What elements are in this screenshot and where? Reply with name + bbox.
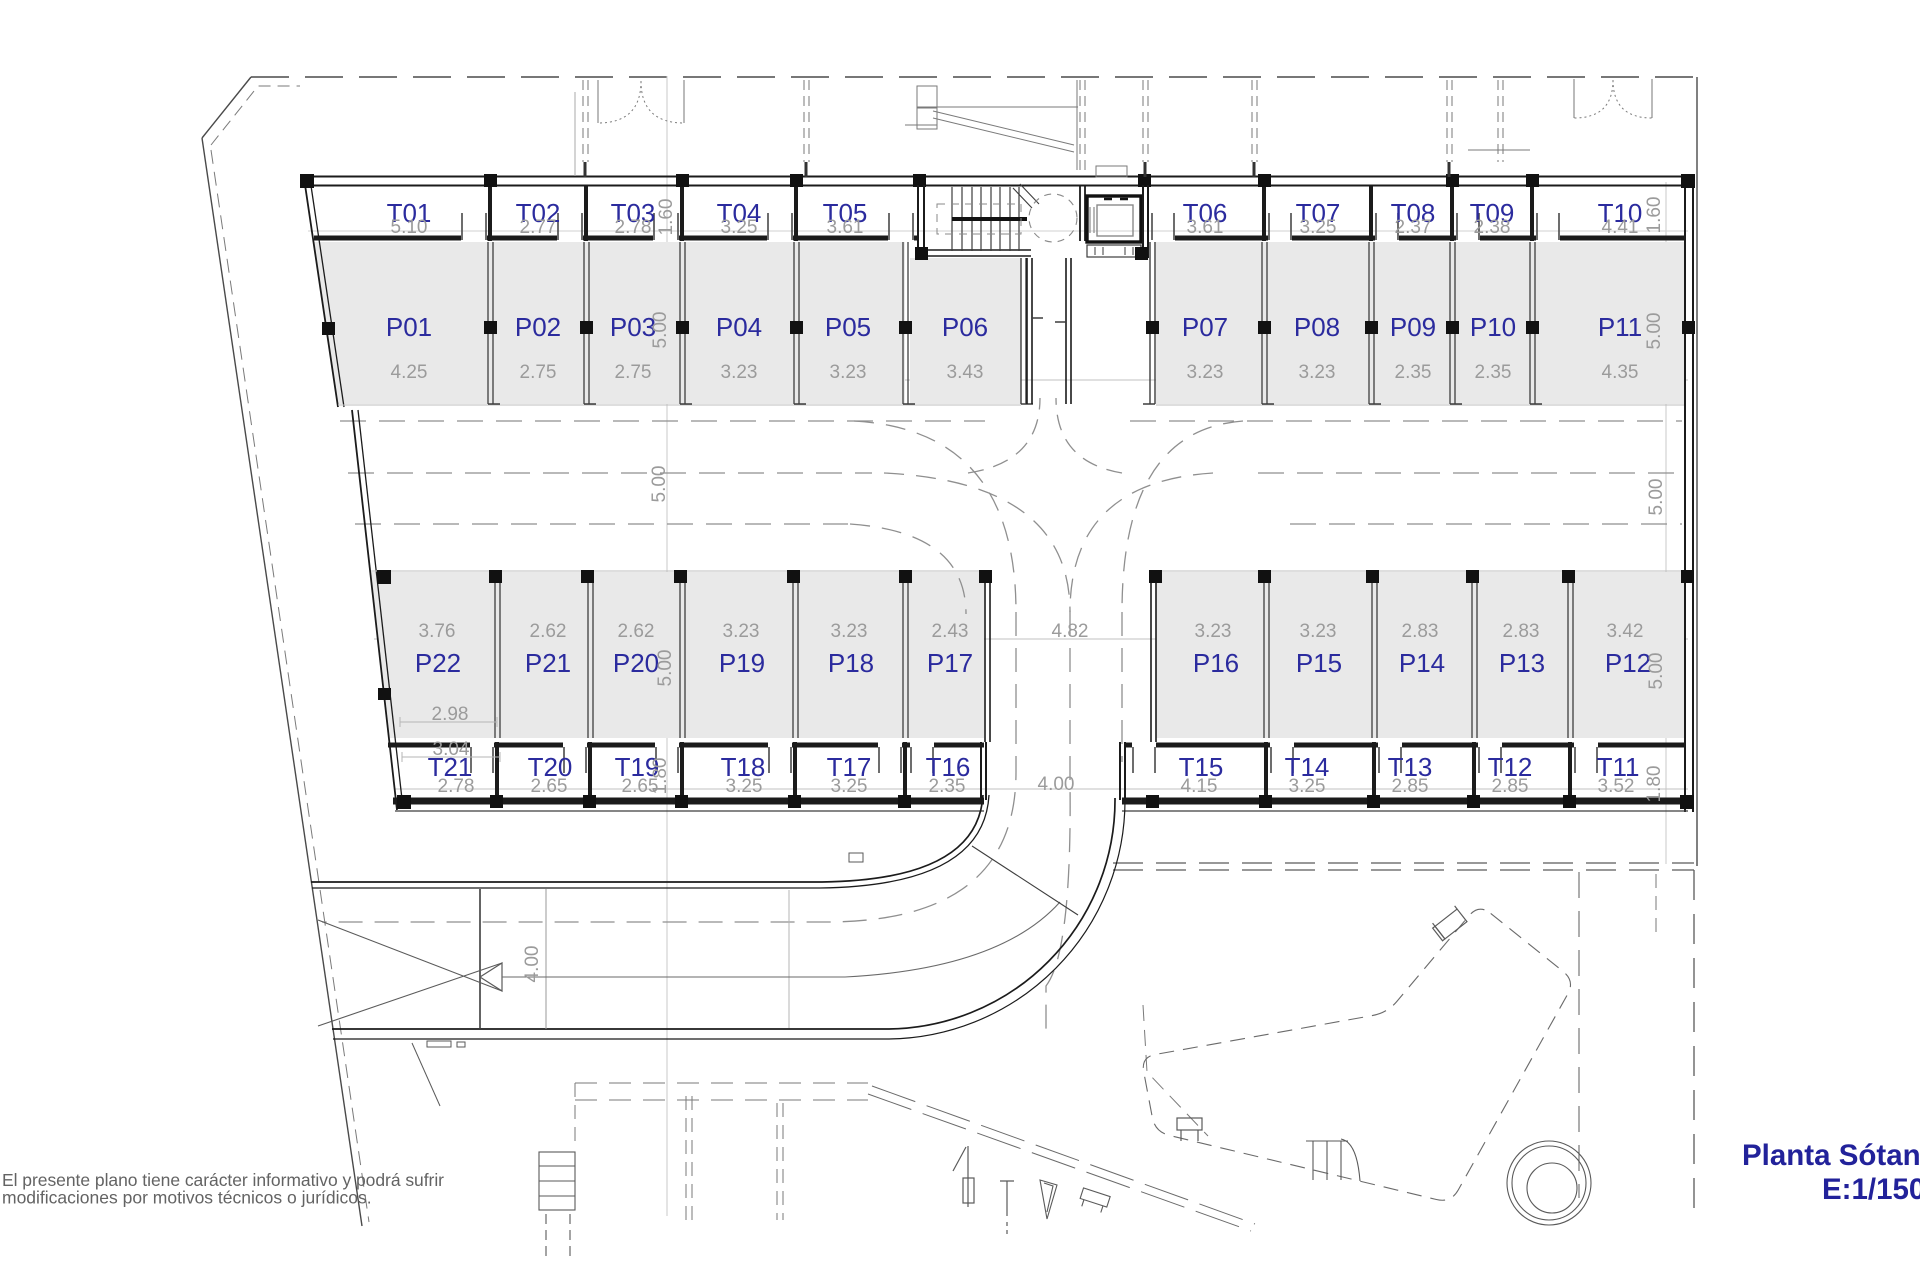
svg-text:3.23: 3.23 bbox=[1187, 362, 1224, 383]
svg-text:3.61: 3.61 bbox=[827, 217, 864, 238]
svg-text:2.83: 2.83 bbox=[1503, 621, 1540, 642]
svg-text:3.43: 3.43 bbox=[947, 362, 984, 383]
svg-text:2.43: 2.43 bbox=[932, 621, 969, 642]
svg-text:P20: P20 bbox=[613, 648, 659, 678]
svg-text:5.00: 5.00 bbox=[649, 466, 670, 503]
svg-text:4.00: 4.00 bbox=[522, 946, 543, 983]
svg-text:3.23: 3.23 bbox=[1299, 362, 1336, 383]
svg-text:4.00: 4.00 bbox=[1038, 774, 1075, 795]
svg-text:3.25: 3.25 bbox=[726, 776, 763, 797]
svg-text:P08: P08 bbox=[1294, 312, 1340, 342]
svg-text:2.78: 2.78 bbox=[615, 217, 652, 238]
svg-text:2.37: 2.37 bbox=[1395, 217, 1432, 238]
svg-text:P09: P09 bbox=[1390, 312, 1436, 342]
svg-text:1.60: 1.60 bbox=[1644, 197, 1665, 234]
svg-text:3.23: 3.23 bbox=[723, 621, 760, 642]
svg-text:P05: P05 bbox=[825, 312, 871, 342]
svg-text:2.35: 2.35 bbox=[1395, 362, 1432, 383]
svg-text:3.23: 3.23 bbox=[721, 362, 758, 383]
svg-text:4.35: 4.35 bbox=[1602, 362, 1639, 383]
svg-text:4.15: 4.15 bbox=[1181, 776, 1218, 797]
svg-text:4.41: 4.41 bbox=[1602, 217, 1639, 238]
svg-text:2.62: 2.62 bbox=[618, 621, 655, 642]
svg-text:3.76: 3.76 bbox=[419, 621, 456, 642]
svg-text:P16: P16 bbox=[1193, 648, 1239, 678]
svg-text:2.38: 2.38 bbox=[1474, 217, 1511, 238]
svg-text:5.00: 5.00 bbox=[650, 312, 671, 349]
svg-text:3.61: 3.61 bbox=[1187, 217, 1224, 238]
svg-text:P12: P12 bbox=[1605, 648, 1651, 678]
svg-text:2.77: 2.77 bbox=[520, 217, 557, 238]
svg-text:Planta Sótano: Planta Sótano bbox=[1742, 1139, 1920, 1172]
svg-text:4.25: 4.25 bbox=[391, 362, 428, 383]
svg-text:2.75: 2.75 bbox=[520, 362, 557, 383]
svg-text:3.25: 3.25 bbox=[1300, 217, 1337, 238]
svg-text:P07: P07 bbox=[1182, 312, 1228, 342]
svg-text:P22: P22 bbox=[415, 648, 461, 678]
svg-text:2.62: 2.62 bbox=[530, 621, 567, 642]
svg-text:5.00: 5.00 bbox=[1646, 653, 1667, 690]
svg-text:3.25: 3.25 bbox=[1289, 776, 1326, 797]
svg-text:P17: P17 bbox=[927, 648, 973, 678]
svg-text:3.23: 3.23 bbox=[1195, 621, 1232, 642]
svg-text:modificaciones por motivos téc: modificaciones por motivos técnicos o ju… bbox=[2, 1188, 372, 1208]
svg-text:3.23: 3.23 bbox=[830, 362, 867, 383]
svg-text:P06: P06 bbox=[942, 312, 988, 342]
svg-text:P01: P01 bbox=[386, 312, 432, 342]
svg-text:2.85: 2.85 bbox=[1392, 776, 1429, 797]
svg-text:5.00: 5.00 bbox=[655, 650, 676, 687]
svg-text:P10: P10 bbox=[1470, 312, 1516, 342]
svg-text:P02: P02 bbox=[515, 312, 561, 342]
svg-text:5.00: 5.00 bbox=[1646, 479, 1667, 516]
svg-text:P04: P04 bbox=[716, 312, 762, 342]
svg-text:2.85: 2.85 bbox=[1492, 776, 1529, 797]
svg-text:P21: P21 bbox=[525, 648, 571, 678]
svg-text:1.80: 1.80 bbox=[1644, 766, 1665, 803]
svg-text:2.83: 2.83 bbox=[1402, 621, 1439, 642]
svg-text:2.35: 2.35 bbox=[929, 776, 966, 797]
svg-text:3.23: 3.23 bbox=[1300, 621, 1337, 642]
svg-text:P18: P18 bbox=[828, 648, 874, 678]
svg-text:2.35: 2.35 bbox=[1475, 362, 1512, 383]
svg-text:3.52: 3.52 bbox=[1598, 776, 1635, 797]
svg-text:2.75: 2.75 bbox=[615, 362, 652, 383]
svg-text:2.78: 2.78 bbox=[438, 776, 475, 797]
svg-text:3.25: 3.25 bbox=[721, 217, 758, 238]
svg-text:E:1/150: E:1/150 bbox=[1822, 1173, 1920, 1206]
svg-text:1.60: 1.60 bbox=[656, 199, 677, 236]
svg-text:1.80: 1.80 bbox=[650, 758, 671, 795]
svg-text:P15: P15 bbox=[1296, 648, 1342, 678]
svg-text:P19: P19 bbox=[719, 648, 765, 678]
svg-text:4.82: 4.82 bbox=[1052, 621, 1089, 642]
svg-text:3.23: 3.23 bbox=[831, 621, 868, 642]
svg-text:3.25: 3.25 bbox=[831, 776, 868, 797]
svg-text:2.65: 2.65 bbox=[531, 776, 568, 797]
svg-text:P14: P14 bbox=[1399, 648, 1445, 678]
svg-text:P11: P11 bbox=[1598, 312, 1642, 342]
svg-text:5.00: 5.00 bbox=[1644, 313, 1665, 350]
svg-text:5.10: 5.10 bbox=[391, 217, 428, 238]
svg-text:P13: P13 bbox=[1499, 648, 1545, 678]
svg-text:3.42: 3.42 bbox=[1607, 621, 1644, 642]
